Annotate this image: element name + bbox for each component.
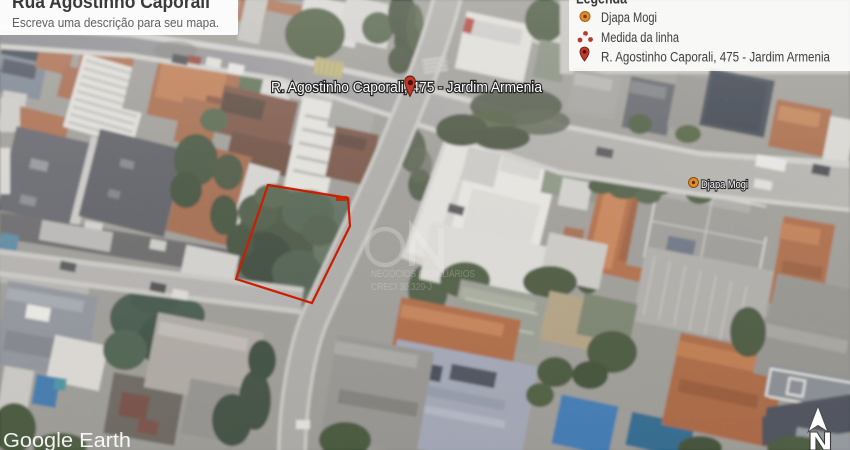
svg-text:R. Agostinho Caporali, 475 - J: R. Agostinho Caporali, 475 - Jardim Arme… xyxy=(601,50,830,65)
svg-text:Medida da linha: Medida da linha xyxy=(601,30,679,45)
svg-text:Google Earth: Google Earth xyxy=(3,430,131,450)
svg-text:NEGÓCIOS IMOBILIÁRIOS: NEGÓCIOS IMOBILIÁRIOS xyxy=(371,267,475,280)
svg-text:Djapa Mogi: Djapa Mogi xyxy=(701,179,748,191)
svg-text:CRECI 30.320-J: CRECI 30.320-J xyxy=(371,282,432,293)
svg-text:Legenda: Legenda xyxy=(576,0,628,8)
svg-text:Escreva uma descrição para seu: Escreva uma descrição para seu mapa. xyxy=(12,16,219,30)
svg-text:Rua Agostinho Caporali: Rua Agostinho Caporali xyxy=(12,0,210,13)
svg-text:Djapa Mogi: Djapa Mogi xyxy=(601,10,657,25)
